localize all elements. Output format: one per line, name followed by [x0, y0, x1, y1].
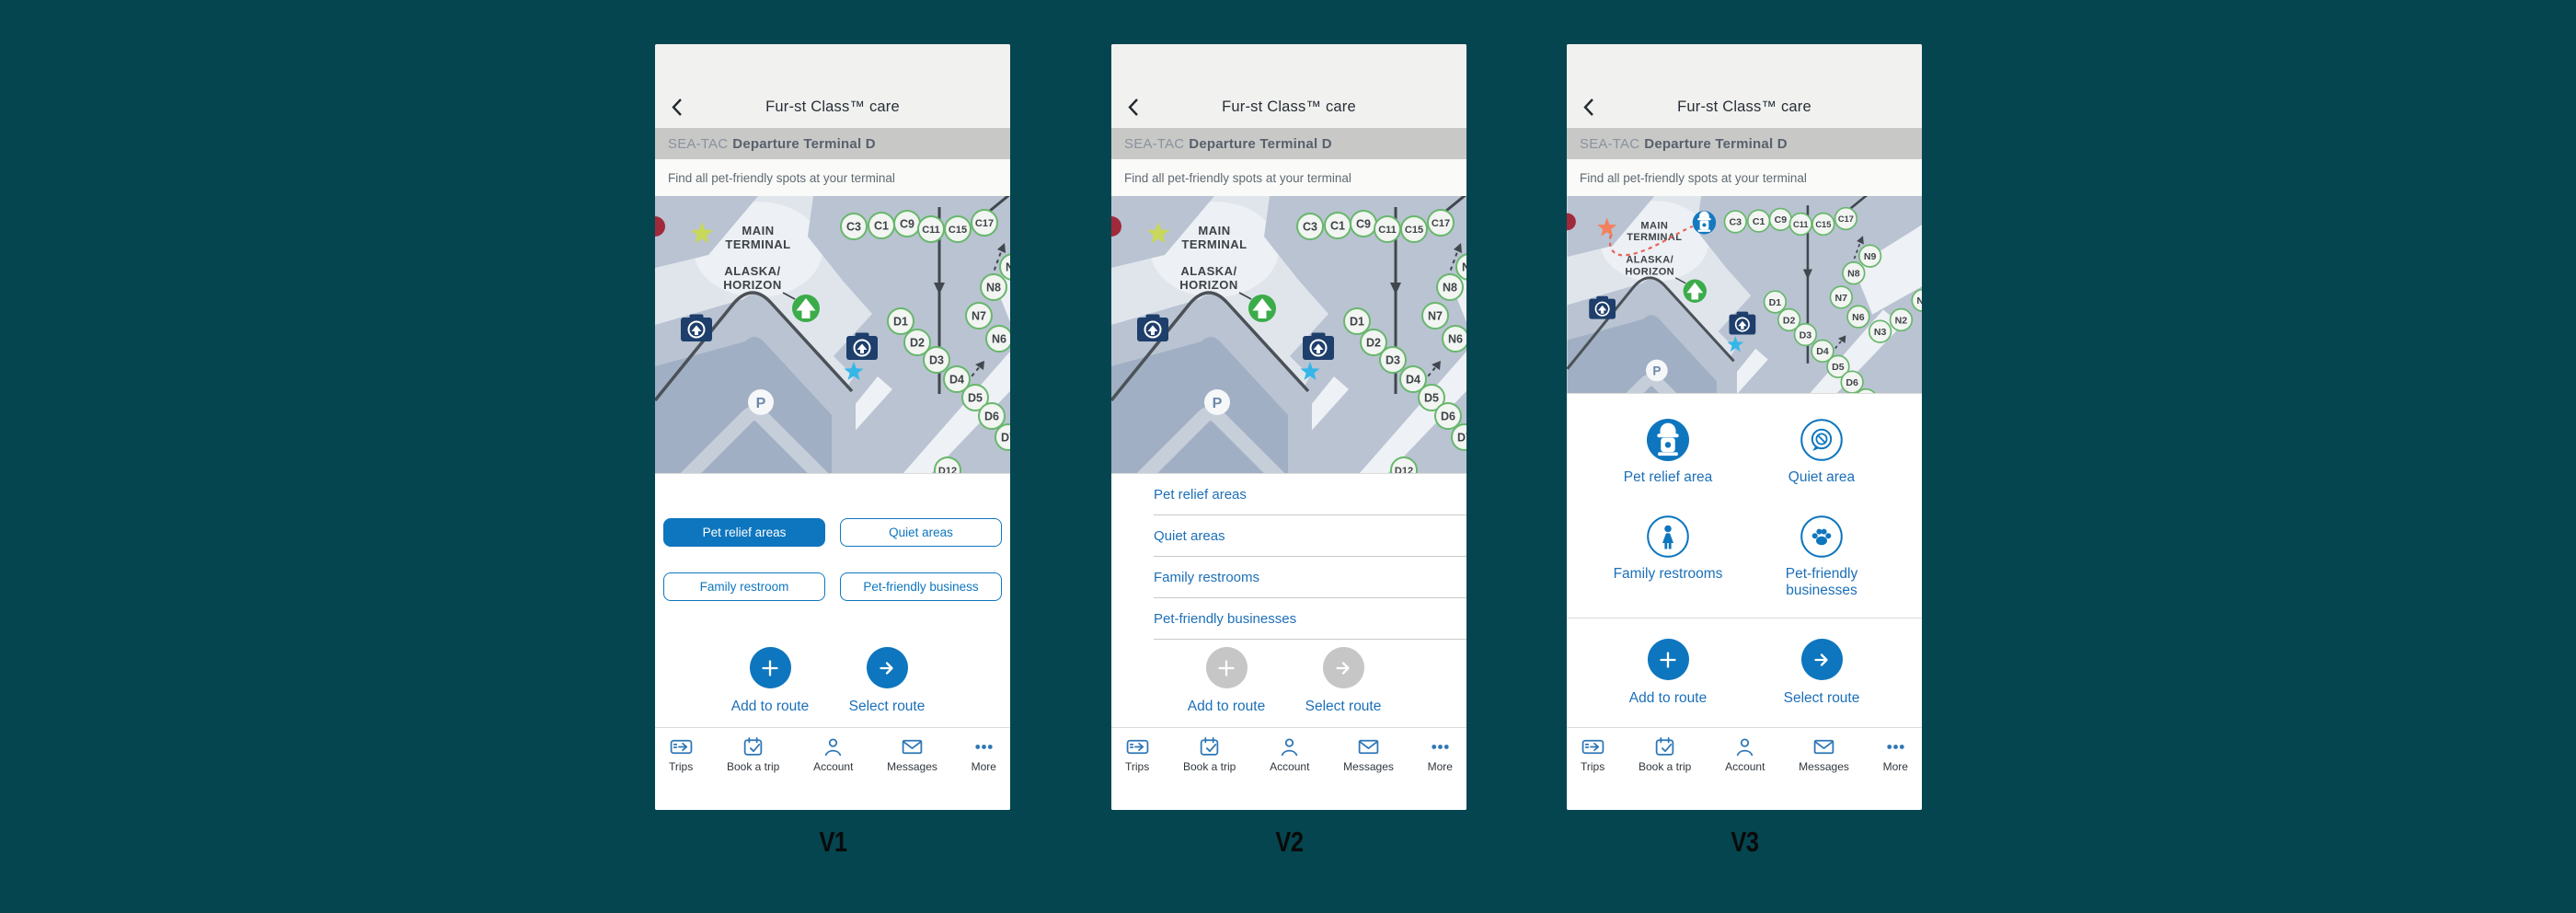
svg-text:N9: N9	[1864, 251, 1877, 262]
svg-text:N7: N7	[1835, 293, 1848, 304]
plus-circle	[1206, 647, 1248, 688]
calendar-check-icon	[742, 735, 765, 758]
svg-text:MAIN: MAIN	[1640, 221, 1668, 232]
route-actions: Add to routeSelect route	[1567, 639, 1922, 735]
version-label-v3: V3	[1567, 826, 1922, 859]
bottom-nav: TripsBook a tripAccountMessagesMore	[1567, 727, 1922, 810]
svg-text:C15: C15	[1815, 220, 1831, 229]
grid-item-pet-friendly-businesses[interactable]: Pet-friendly businesses	[1753, 515, 1891, 600]
nav-item-trips[interactable]: Trips	[1581, 735, 1604, 810]
page-title: Fur-st Class™ care	[1567, 98, 1922, 116]
arrow-icon	[1811, 649, 1833, 671]
svg-text:N6: N6	[1852, 312, 1865, 323]
svg-text:D2: D2	[1783, 315, 1796, 326]
filter-button-pet-relief-areas[interactable]: Pet relief areas	[663, 518, 825, 547]
nav-item-more[interactable]: More	[972, 735, 996, 810]
svg-text:C3: C3	[1303, 221, 1317, 234]
add-to-route-button[interactable]: Add to route	[1167, 647, 1286, 715]
filter-button-pet-friendly-business[interactable]: Pet-friendly business	[840, 572, 1002, 601]
person-icon	[1647, 515, 1689, 558]
select-route-button[interactable]: Select route	[1283, 647, 1403, 715]
nav-label: Trips	[1581, 760, 1604, 773]
nav-item-book-a-trip[interactable]: Book a trip	[727, 735, 779, 810]
nav-label: Account	[1270, 760, 1309, 773]
svg-text:C11: C11	[1378, 225, 1397, 236]
route-label: Select route	[849, 699, 926, 715]
svg-text:D12: D12	[938, 466, 957, 473]
ticket-icon	[1126, 735, 1149, 758]
person-icon	[822, 735, 845, 758]
category-list: Pet relief areasQuiet areasFamily restro…	[1111, 474, 1466, 640]
terminal-map[interactable]: C3C1C9C11C15C17N9N8N7N6N3N2N1D1D2D3D4D5D…	[1567, 196, 1922, 394]
svg-text:D1: D1	[1769, 297, 1782, 308]
nav-item-account[interactable]: Account	[813, 735, 853, 810]
bottom-nav: TripsBook a tripAccountMessagesMore	[655, 727, 1010, 810]
nav-label: Trips	[1125, 760, 1149, 773]
list-item-pet-friendly-businesses[interactable]: Pet-friendly businesses	[1111, 598, 1466, 640]
svg-text:D12: D12	[1395, 466, 1413, 473]
svg-text:D6: D6	[1846, 377, 1858, 388]
app-screen-v1: Fur-st Class™ care SEA-TAC Departure Ter…	[655, 44, 1010, 810]
nav-label: Account	[1725, 760, 1765, 773]
svg-text:C1: C1	[1330, 220, 1345, 233]
location-bar: SEA-TAC Departure Terminal D	[655, 128, 1010, 159]
svg-text:C9: C9	[1356, 218, 1371, 231]
route-label: Add to route	[1629, 690, 1707, 707]
grid-item-label: Family restrooms	[1614, 566, 1723, 583]
nav-item-book-a-trip[interactable]: Book a trip	[1183, 735, 1236, 810]
ticket-icon	[670, 735, 693, 758]
svg-text:D3: D3	[1800, 329, 1812, 341]
quiet-icon	[1800, 419, 1843, 461]
svg-text:D7: D7	[1001, 432, 1010, 445]
grid-item-quiet-area[interactable]: Quiet area	[1753, 419, 1891, 486]
svg-text:P: P	[1652, 364, 1661, 377]
canvas: { "background": "#05454F", "accent": "#0…	[0, 0, 2576, 913]
svg-text:D5: D5	[1424, 392, 1439, 405]
nav-label: Messages	[887, 760, 937, 773]
nav-item-account[interactable]: Account	[1270, 735, 1309, 810]
location-terminal: Departure Terminal D	[1189, 136, 1331, 152]
nav-label: Messages	[1799, 760, 1849, 773]
route-label: Add to route	[731, 699, 809, 715]
nav-label: More	[972, 760, 996, 773]
list-item-family-restrooms[interactable]: Family restrooms	[1111, 557, 1466, 598]
svg-text:HORIZON: HORIZON	[1625, 266, 1674, 277]
nav-item-more[interactable]: More	[1883, 735, 1908, 810]
nav-item-trips[interactable]: Trips	[1125, 735, 1149, 810]
route-label: Add to route	[1188, 699, 1265, 715]
arrow-circle	[1323, 647, 1364, 688]
nav-item-trips[interactable]: Trips	[669, 735, 693, 810]
nav-label: Messages	[1343, 760, 1394, 773]
nav-item-messages[interactable]: Messages	[1799, 735, 1849, 810]
header: Fur-st Class™ care	[1567, 44, 1922, 128]
calendar-check-icon	[1198, 735, 1221, 758]
location-prefix: SEA-TAC	[1580, 136, 1639, 152]
svg-text:D4: D4	[949, 374, 964, 387]
svg-text:ALASKA/: ALASKA/	[724, 264, 780, 278]
plus-icon	[1657, 649, 1679, 671]
location-terminal: Departure Terminal D	[1644, 136, 1787, 152]
svg-text:D1: D1	[1350, 316, 1364, 329]
app-screen-v3: Fur-st Class™ care SEA-TAC Departure Ter…	[1567, 44, 1922, 810]
nav-label: Trips	[669, 760, 693, 773]
person-icon	[1733, 735, 1756, 758]
svg-text:D3: D3	[1386, 354, 1400, 367]
ellipsis-icon	[1884, 735, 1907, 758]
svg-text:MAIN: MAIN	[742, 224, 774, 237]
svg-text:D3: D3	[929, 354, 944, 367]
svg-text:D6: D6	[1441, 410, 1455, 423]
page-title: Fur-st Class™ care	[1111, 98, 1466, 116]
page-title: Fur-st Class™ care	[655, 98, 1010, 116]
svg-text:D1: D1	[893, 316, 908, 329]
calendar-check-icon	[1653, 735, 1676, 758]
plus-circle	[1648, 639, 1689, 680]
nav-label: Book a trip	[1639, 760, 1691, 773]
svg-text:C9: C9	[900, 218, 914, 231]
svg-text:C3: C3	[1730, 217, 1742, 228]
bottom-nav: TripsBook a tripAccountMessagesMore	[1111, 727, 1466, 810]
nav-item-account[interactable]: Account	[1725, 735, 1765, 810]
svg-text:D7: D7	[1457, 432, 1466, 445]
svg-text:N9: N9	[1006, 261, 1010, 274]
svg-text:C1: C1	[874, 220, 889, 233]
nav-label: More	[1883, 760, 1908, 773]
subtitle: Find all pet-friendly spots at your term…	[1111, 159, 1466, 196]
arrow-icon	[1332, 657, 1354, 679]
svg-text:C11: C11	[1793, 220, 1809, 229]
plus-circle	[750, 647, 791, 688]
svg-text:N1: N1	[1916, 295, 1922, 306]
terminal-map[interactable]: C3C1C9C11C15C17N9N8N7N6N3N2N1D1D2D3D4D5D…	[655, 196, 1010, 474]
select-route-button[interactable]: Select route	[1762, 639, 1881, 707]
nav-label: Book a trip	[1183, 760, 1236, 773]
add-to-route-button[interactable]: Add to route	[1608, 639, 1728, 707]
svg-text:C9: C9	[1775, 214, 1788, 225]
filter-button-quiet-areas[interactable]: Quiet areas	[840, 518, 1002, 547]
svg-text:ALASKA/: ALASKA/	[1180, 264, 1236, 278]
version-label-v2: V2	[1111, 826, 1466, 859]
app-screen-v2: Fur-st Class™ care SEA-TAC Departure Ter…	[1111, 44, 1466, 810]
subtitle: Find all pet-friendly spots at your term…	[655, 159, 1010, 196]
svg-text:D5: D5	[1832, 362, 1845, 373]
svg-text:N2: N2	[1895, 315, 1908, 326]
svg-text:N6: N6	[1448, 333, 1463, 346]
list-item-quiet-areas[interactable]: Quiet areas	[1111, 515, 1466, 557]
svg-text:C3: C3	[846, 221, 861, 234]
svg-text:C1: C1	[1753, 216, 1765, 227]
nav-item-messages[interactable]: Messages	[887, 735, 937, 810]
filter-button-family-restroom[interactable]: Family restroom	[663, 572, 825, 601]
grid-item-label: Pet-friendly businesses	[1753, 566, 1891, 600]
header: Fur-st Class™ care	[655, 44, 1010, 128]
location-bar: SEA-TAC Departure Terminal D	[1567, 128, 1922, 159]
grid-item-label: Quiet area	[1788, 469, 1855, 486]
route-label: Select route	[1784, 690, 1860, 707]
filter-buttons: Pet relief areasQuiet areasFamily restro…	[655, 474, 1010, 601]
nav-item-more[interactable]: More	[1428, 735, 1453, 810]
svg-text:P: P	[1213, 396, 1223, 411]
grid-item-pet-relief-area[interactable]: Pet relief area	[1599, 419, 1737, 486]
location-terminal: Departure Terminal D	[732, 136, 875, 152]
nav-item-messages[interactable]: Messages	[1343, 735, 1394, 810]
ellipsis-icon	[1429, 735, 1452, 758]
nav-label: Book a trip	[727, 760, 779, 773]
svg-text:C17: C17	[1432, 218, 1450, 229]
list-item-pet-relief-areas[interactable]: Pet relief areas	[1111, 474, 1466, 515]
svg-text:C11: C11	[922, 225, 940, 236]
svg-text:ALASKA/: ALASKA/	[1626, 255, 1673, 266]
arrow-icon	[876, 657, 898, 679]
svg-text:P: P	[756, 396, 766, 411]
grid-item-family-restrooms[interactable]: Family restrooms	[1599, 515, 1737, 583]
svg-text:HORIZON: HORIZON	[723, 278, 781, 292]
ticket-icon	[1581, 735, 1604, 758]
version-label-v1: V1	[655, 826, 1010, 859]
subtitle: Find all pet-friendly spots at your term…	[1567, 159, 1922, 196]
arrow-circle	[867, 647, 908, 688]
person-icon	[1278, 735, 1301, 758]
hydrant-icon	[1647, 419, 1689, 461]
svg-text:D4: D4	[1816, 346, 1829, 357]
svg-text:D5: D5	[968, 392, 983, 405]
nav-label: More	[1428, 760, 1453, 773]
grid-item-label: Pet relief area	[1624, 469, 1713, 486]
nav-item-book-a-trip[interactable]: Book a trip	[1639, 735, 1691, 810]
envelope-icon	[1357, 735, 1380, 758]
header: Fur-st Class™ care	[1111, 44, 1466, 128]
svg-text:C15: C15	[1405, 225, 1423, 236]
svg-text:TERMINAL: TERMINAL	[1181, 237, 1247, 251]
svg-text:N8: N8	[1443, 282, 1457, 295]
svg-text:C15: C15	[949, 225, 967, 236]
ellipsis-icon	[972, 735, 995, 758]
svg-text:HORIZON: HORIZON	[1179, 278, 1237, 292]
svg-text:N3: N3	[1874, 327, 1887, 338]
plus-icon	[1215, 657, 1237, 679]
location-prefix: SEA-TAC	[668, 136, 728, 152]
svg-text:C17: C17	[975, 218, 994, 229]
divider	[1567, 618, 1922, 618]
envelope-icon	[1812, 735, 1835, 758]
svg-text:N6: N6	[992, 333, 1006, 346]
terminal-map[interactable]: C3C1C9C11C15C17N9N8N7N6N3N2N1D1D2D3D4D5D…	[1111, 196, 1466, 474]
svg-text:N7: N7	[1428, 310, 1443, 323]
add-to-route-button[interactable]: Add to route	[710, 647, 830, 715]
plus-icon	[759, 657, 781, 679]
svg-text:C17: C17	[1838, 214, 1854, 224]
location-bar: SEA-TAC Departure Terminal D	[1111, 128, 1466, 159]
location-prefix: SEA-TAC	[1124, 136, 1184, 152]
svg-text:N8: N8	[986, 282, 1001, 295]
envelope-icon	[901, 735, 924, 758]
route-label: Select route	[1305, 699, 1382, 715]
svg-text:N7: N7	[972, 310, 986, 323]
svg-text:N9: N9	[1462, 261, 1466, 274]
svg-text:TERMINAL: TERMINAL	[1627, 232, 1682, 243]
nav-label: Account	[813, 760, 853, 773]
svg-text:TERMINAL: TERMINAL	[725, 237, 790, 251]
svg-text:D6: D6	[984, 410, 999, 423]
category-grid: Pet relief areaQuiet areaFamily restroom…	[1567, 394, 1922, 618]
svg-text:D2: D2	[1366, 337, 1381, 350]
paw-icon	[1800, 515, 1843, 558]
arrow-circle	[1801, 639, 1843, 680]
svg-text:MAIN: MAIN	[1198, 224, 1230, 237]
select-route-button[interactable]: Select route	[827, 647, 947, 715]
svg-text:D4: D4	[1406, 374, 1420, 387]
svg-text:D2: D2	[910, 337, 925, 350]
svg-text:N8: N8	[1847, 269, 1860, 280]
